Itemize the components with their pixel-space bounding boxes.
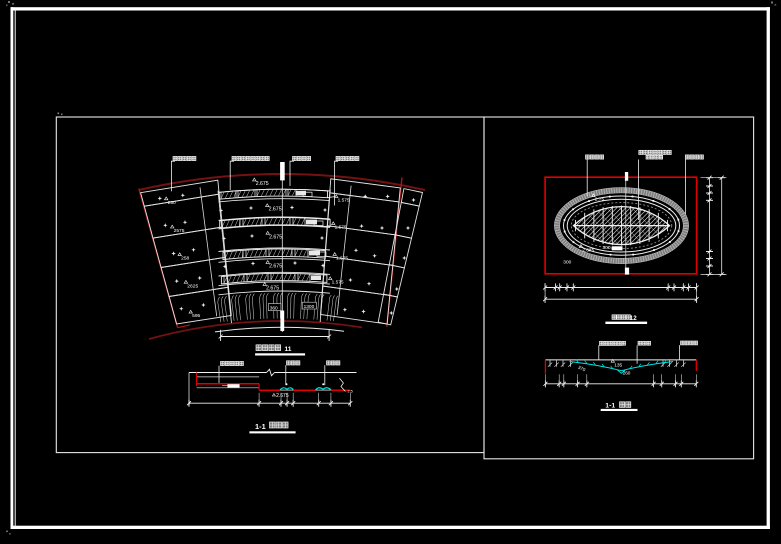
svg-text:12: 12 (630, 315, 637, 322)
svg-text:2.675: 2.675 (269, 207, 282, 213)
svg-text:1300: 1300 (304, 304, 315, 310)
svg-text:250: 250 (168, 200, 176, 206)
svg-text:1.575: 1.575 (338, 198, 350, 204)
svg-text:300: 300 (603, 245, 611, 251)
svg-text:1.575: 1.575 (332, 280, 344, 286)
svg-text:360: 360 (270, 306, 278, 312)
svg-text:2.675: 2.675 (269, 234, 282, 240)
svg-text:258: 258 (181, 256, 189, 262)
svg-text:2.75: 2.75 (595, 197, 605, 203)
svg-text:135: 135 (614, 362, 622, 368)
svg-text:2.675: 2.675 (266, 286, 279, 292)
svg-text:2.675: 2.675 (256, 181, 269, 187)
svg-text:2575: 2575 (174, 228, 185, 234)
svg-text:595: 595 (192, 313, 200, 319)
svg-text:2.675: 2.675 (582, 248, 594, 254)
svg-text:1-1: 1-1 (255, 422, 266, 431)
svg-text:260: 260 (623, 371, 631, 376)
svg-text:2625: 2625 (187, 283, 198, 289)
svg-text:1-1: 1-1 (605, 402, 615, 409)
svg-text:2.675: 2.675 (269, 264, 282, 270)
svg-text:11: 11 (285, 346, 292, 353)
svg-text:300: 300 (563, 259, 571, 265)
